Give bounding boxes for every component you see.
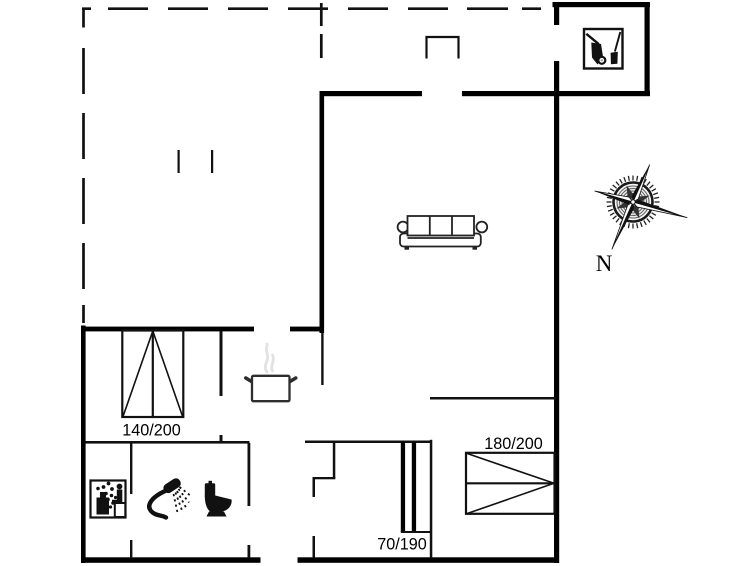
svg-text:140/200: 140/200 bbox=[122, 422, 181, 440]
svg-text:N: N bbox=[596, 251, 613, 276]
svg-text:70/190: 70/190 bbox=[377, 536, 427, 554]
svg-text:180/200: 180/200 bbox=[484, 435, 543, 453]
